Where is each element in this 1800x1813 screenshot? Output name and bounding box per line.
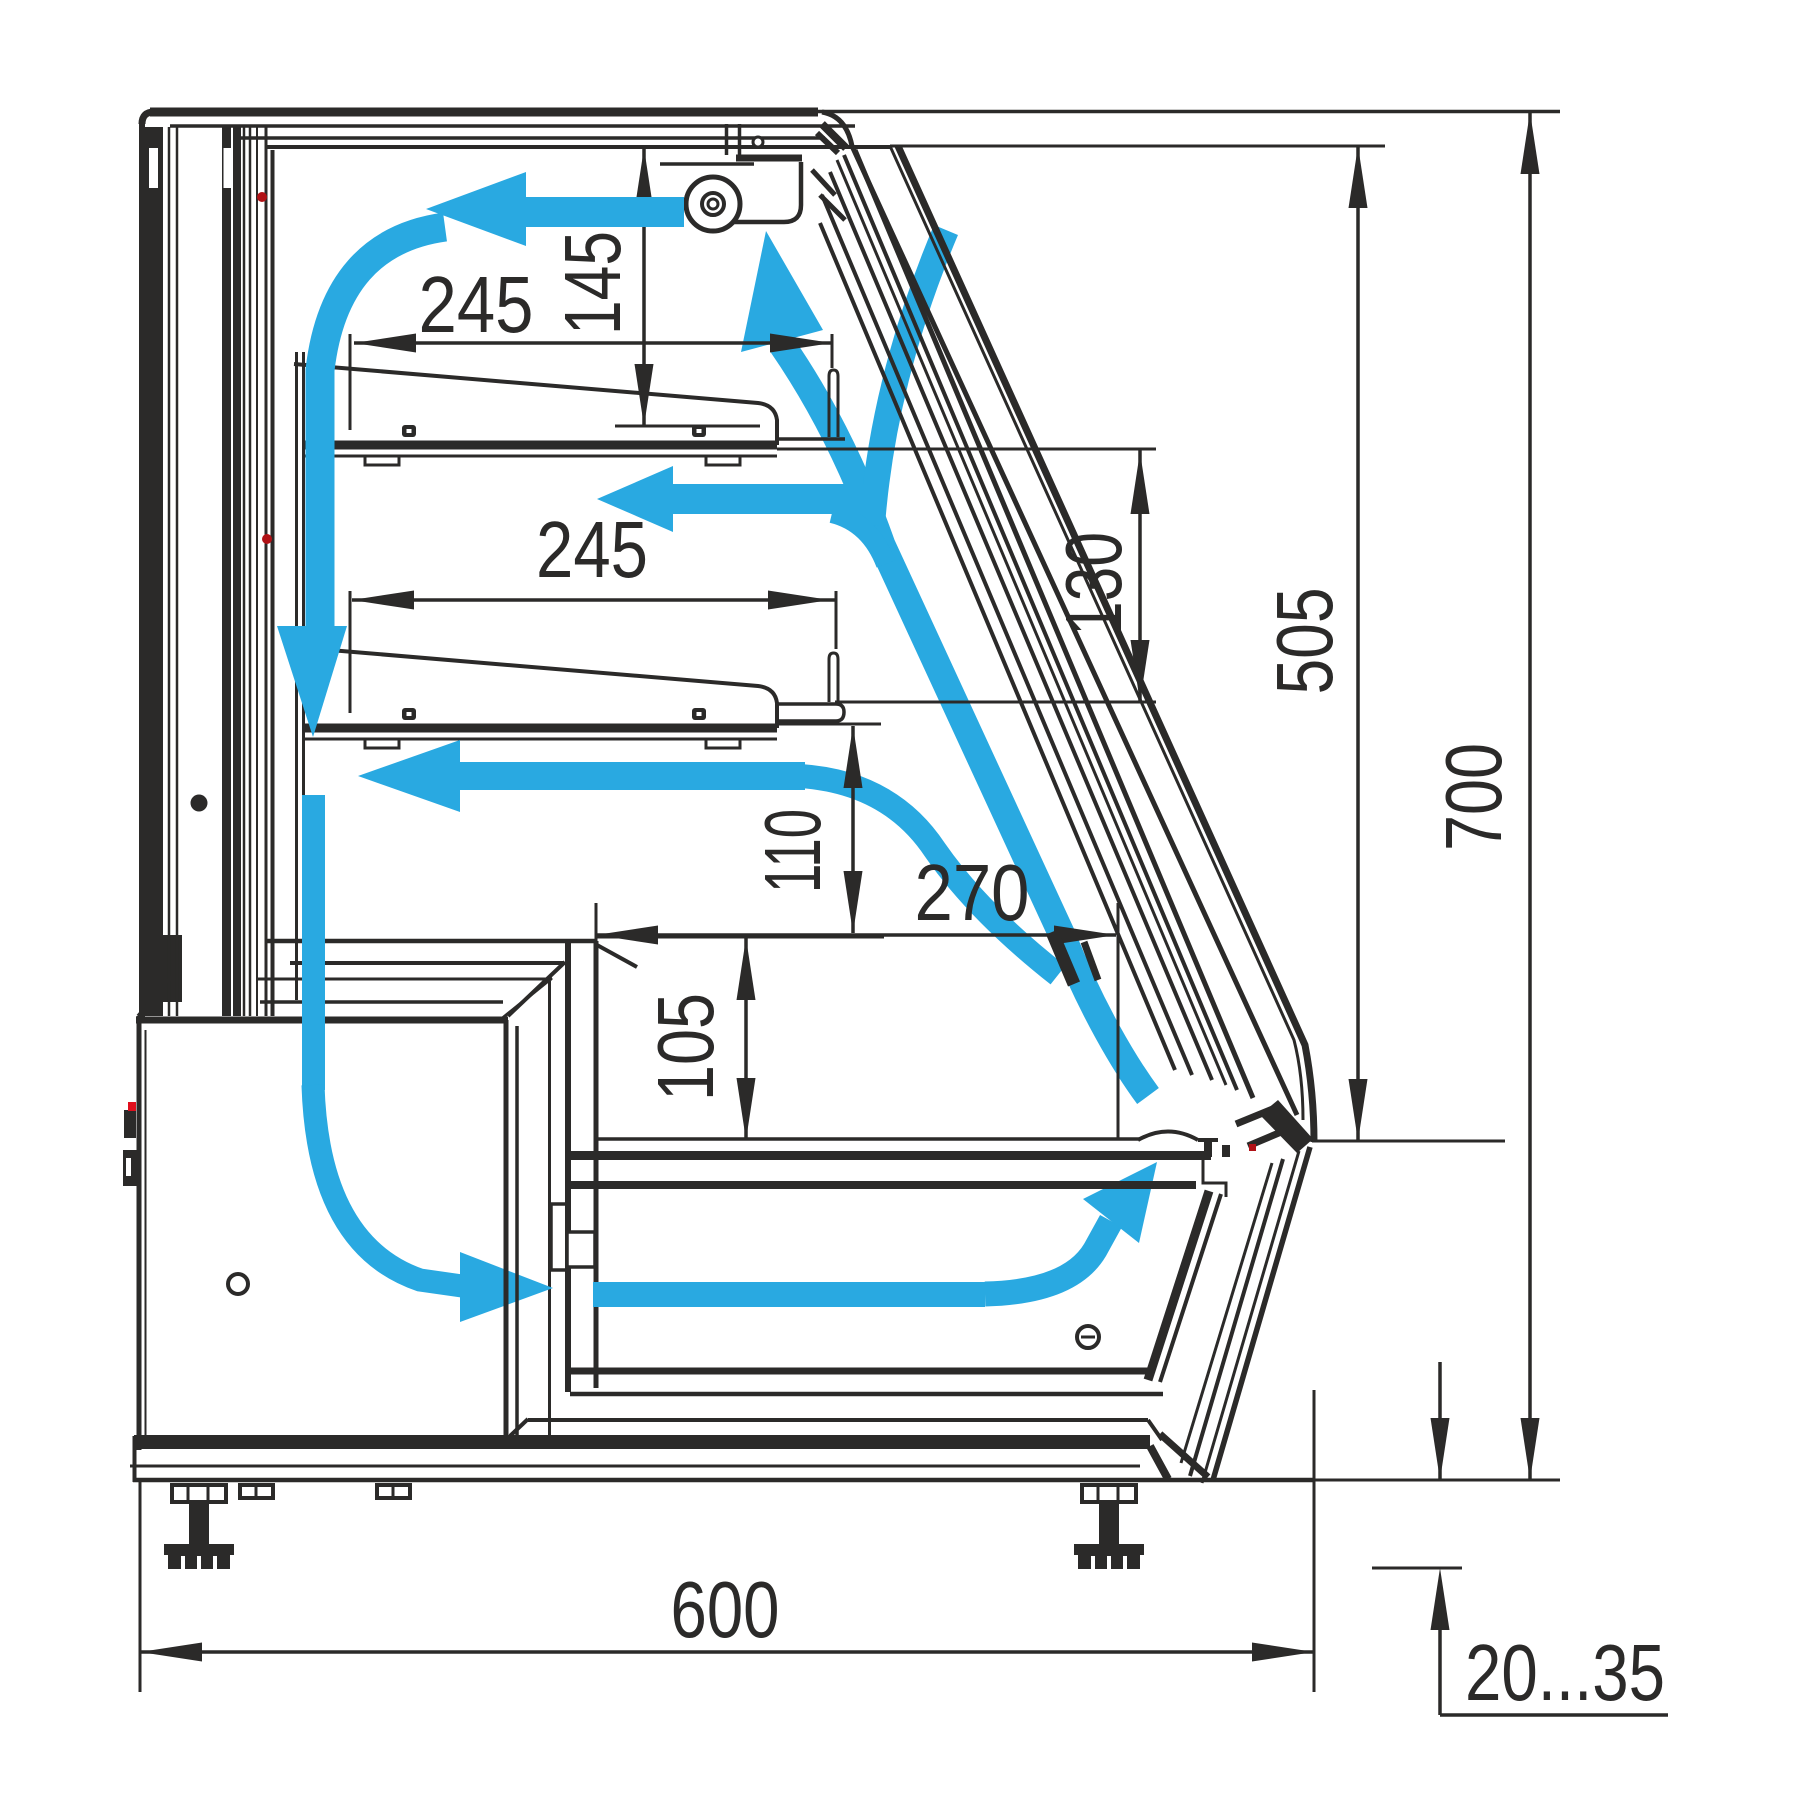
svg-text:145: 145 [548,231,637,335]
svg-text:20...35: 20...35 [1465,1628,1665,1717]
svg-text:270: 270 [915,848,1030,937]
svg-text:245: 245 [419,260,534,349]
svg-text:700: 700 [1429,743,1518,851]
svg-text:505: 505 [1260,588,1349,695]
svg-text:245: 245 [536,505,648,594]
svg-text:105: 105 [641,993,730,1101]
svg-text:600: 600 [671,1565,780,1654]
svg-text:130: 130 [1049,532,1138,636]
svg-text:110: 110 [748,809,837,893]
